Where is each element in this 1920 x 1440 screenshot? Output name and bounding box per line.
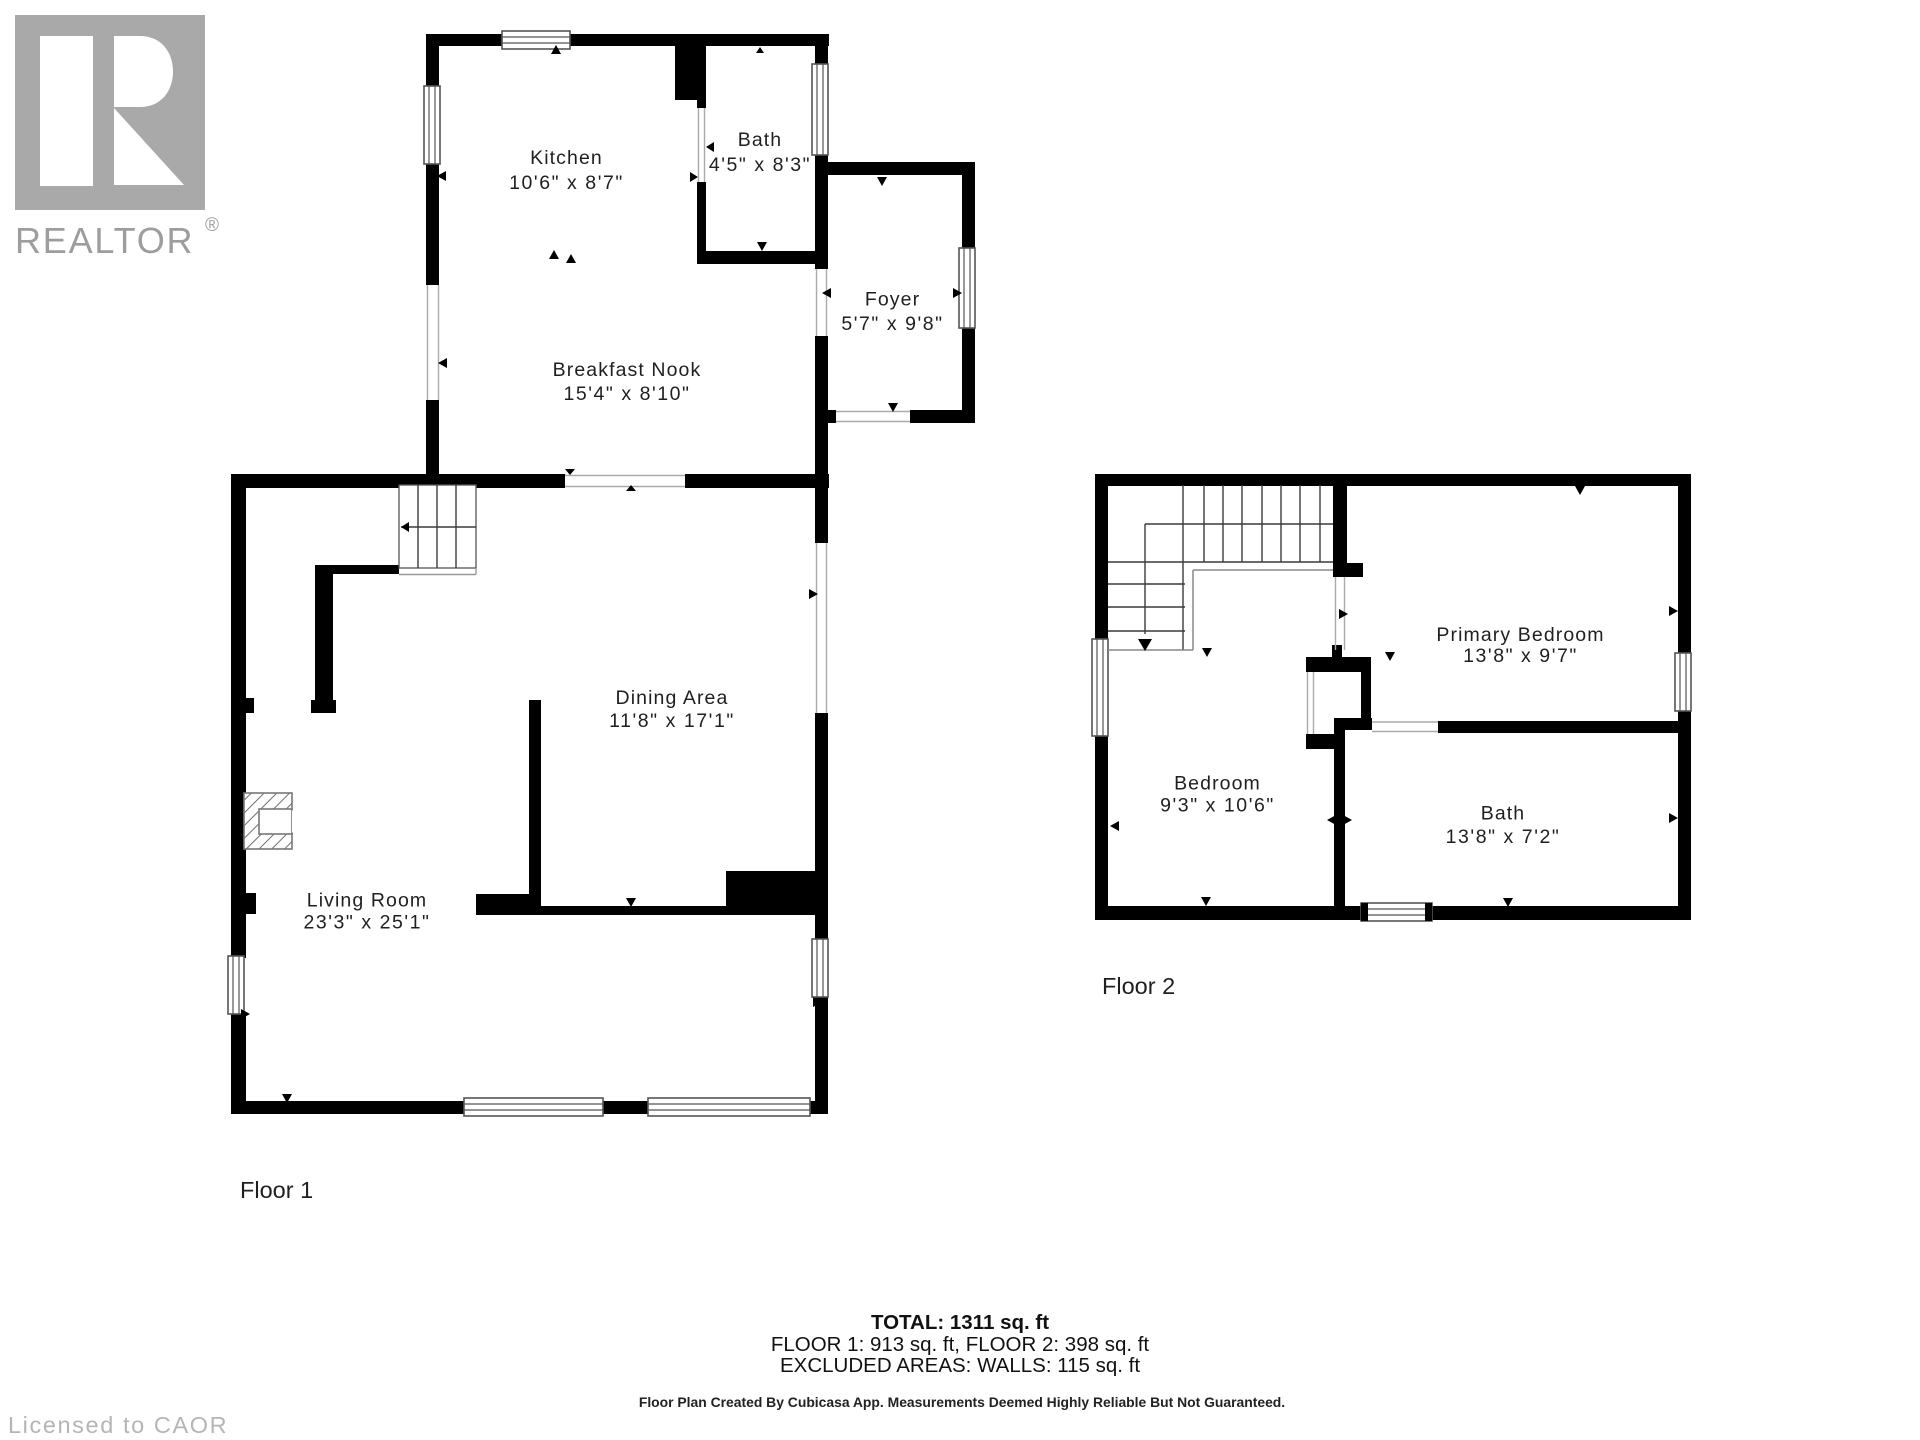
svg-text:Dining Area: Dining Area [616, 687, 729, 709]
svg-text:Licensed to CAOR: Licensed to CAOR [8, 1412, 228, 1438]
svg-text:FLOOR 1: 913 sq. ft, FLOOR 2:: FLOOR 1: 913 sq. ft, FLOOR 2: 398 sq. ft [771, 1333, 1150, 1356]
svg-text:Kitchen: Kitchen [530, 147, 603, 169]
svg-text:Living Room: Living Room [307, 890, 427, 912]
svg-text:15'4" x 8'10": 15'4" x 8'10" [563, 383, 690, 405]
svg-text:Bedroom: Bedroom [1174, 773, 1261, 795]
svg-text:Bath: Bath [738, 129, 783, 151]
svg-text:13'8" x 7'2": 13'8" x 7'2" [1446, 826, 1561, 848]
svg-text:®: ® [205, 215, 219, 236]
svg-text:Bath: Bath [1481, 803, 1526, 825]
svg-text:4'5" x 8'3": 4'5" x 8'3" [709, 154, 811, 176]
svg-text:5'7" x 9'8": 5'7" x 9'8" [841, 313, 943, 335]
svg-text:Floor 1: Floor 1 [240, 1177, 313, 1203]
svg-text:Floor 2: Floor 2 [1102, 973, 1175, 999]
svg-text:Primary Bedroom: Primary Bedroom [1436, 624, 1604, 646]
svg-text:9'3" x 10'6": 9'3" x 10'6" [1160, 795, 1275, 817]
svg-text:Floor Plan Created By Cubicasa: Floor Plan Created By Cubicasa App. Meas… [639, 1394, 1285, 1410]
svg-text:11'8" x 17'1": 11'8" x 17'1" [609, 710, 735, 732]
svg-text:13'8" x 9'7": 13'8" x 9'7" [1463, 645, 1578, 667]
svg-text:Foyer: Foyer [865, 289, 920, 311]
svg-text:TOTAL: 1311 sq. ft: TOTAL: 1311 sq. ft [871, 1311, 1049, 1334]
svg-text:EXCLUDED AREAS: WALLS: 115 sq.: EXCLUDED AREAS: WALLS: 115 sq. ft [780, 1354, 1140, 1377]
svg-text:Breakfast Nook: Breakfast Nook [553, 359, 702, 381]
svg-text:REALTOR: REALTOR [15, 220, 194, 261]
svg-text:10'6" x 8'7": 10'6" x 8'7" [509, 172, 624, 194]
svg-text:23'3" x 25'1": 23'3" x 25'1" [303, 912, 430, 934]
